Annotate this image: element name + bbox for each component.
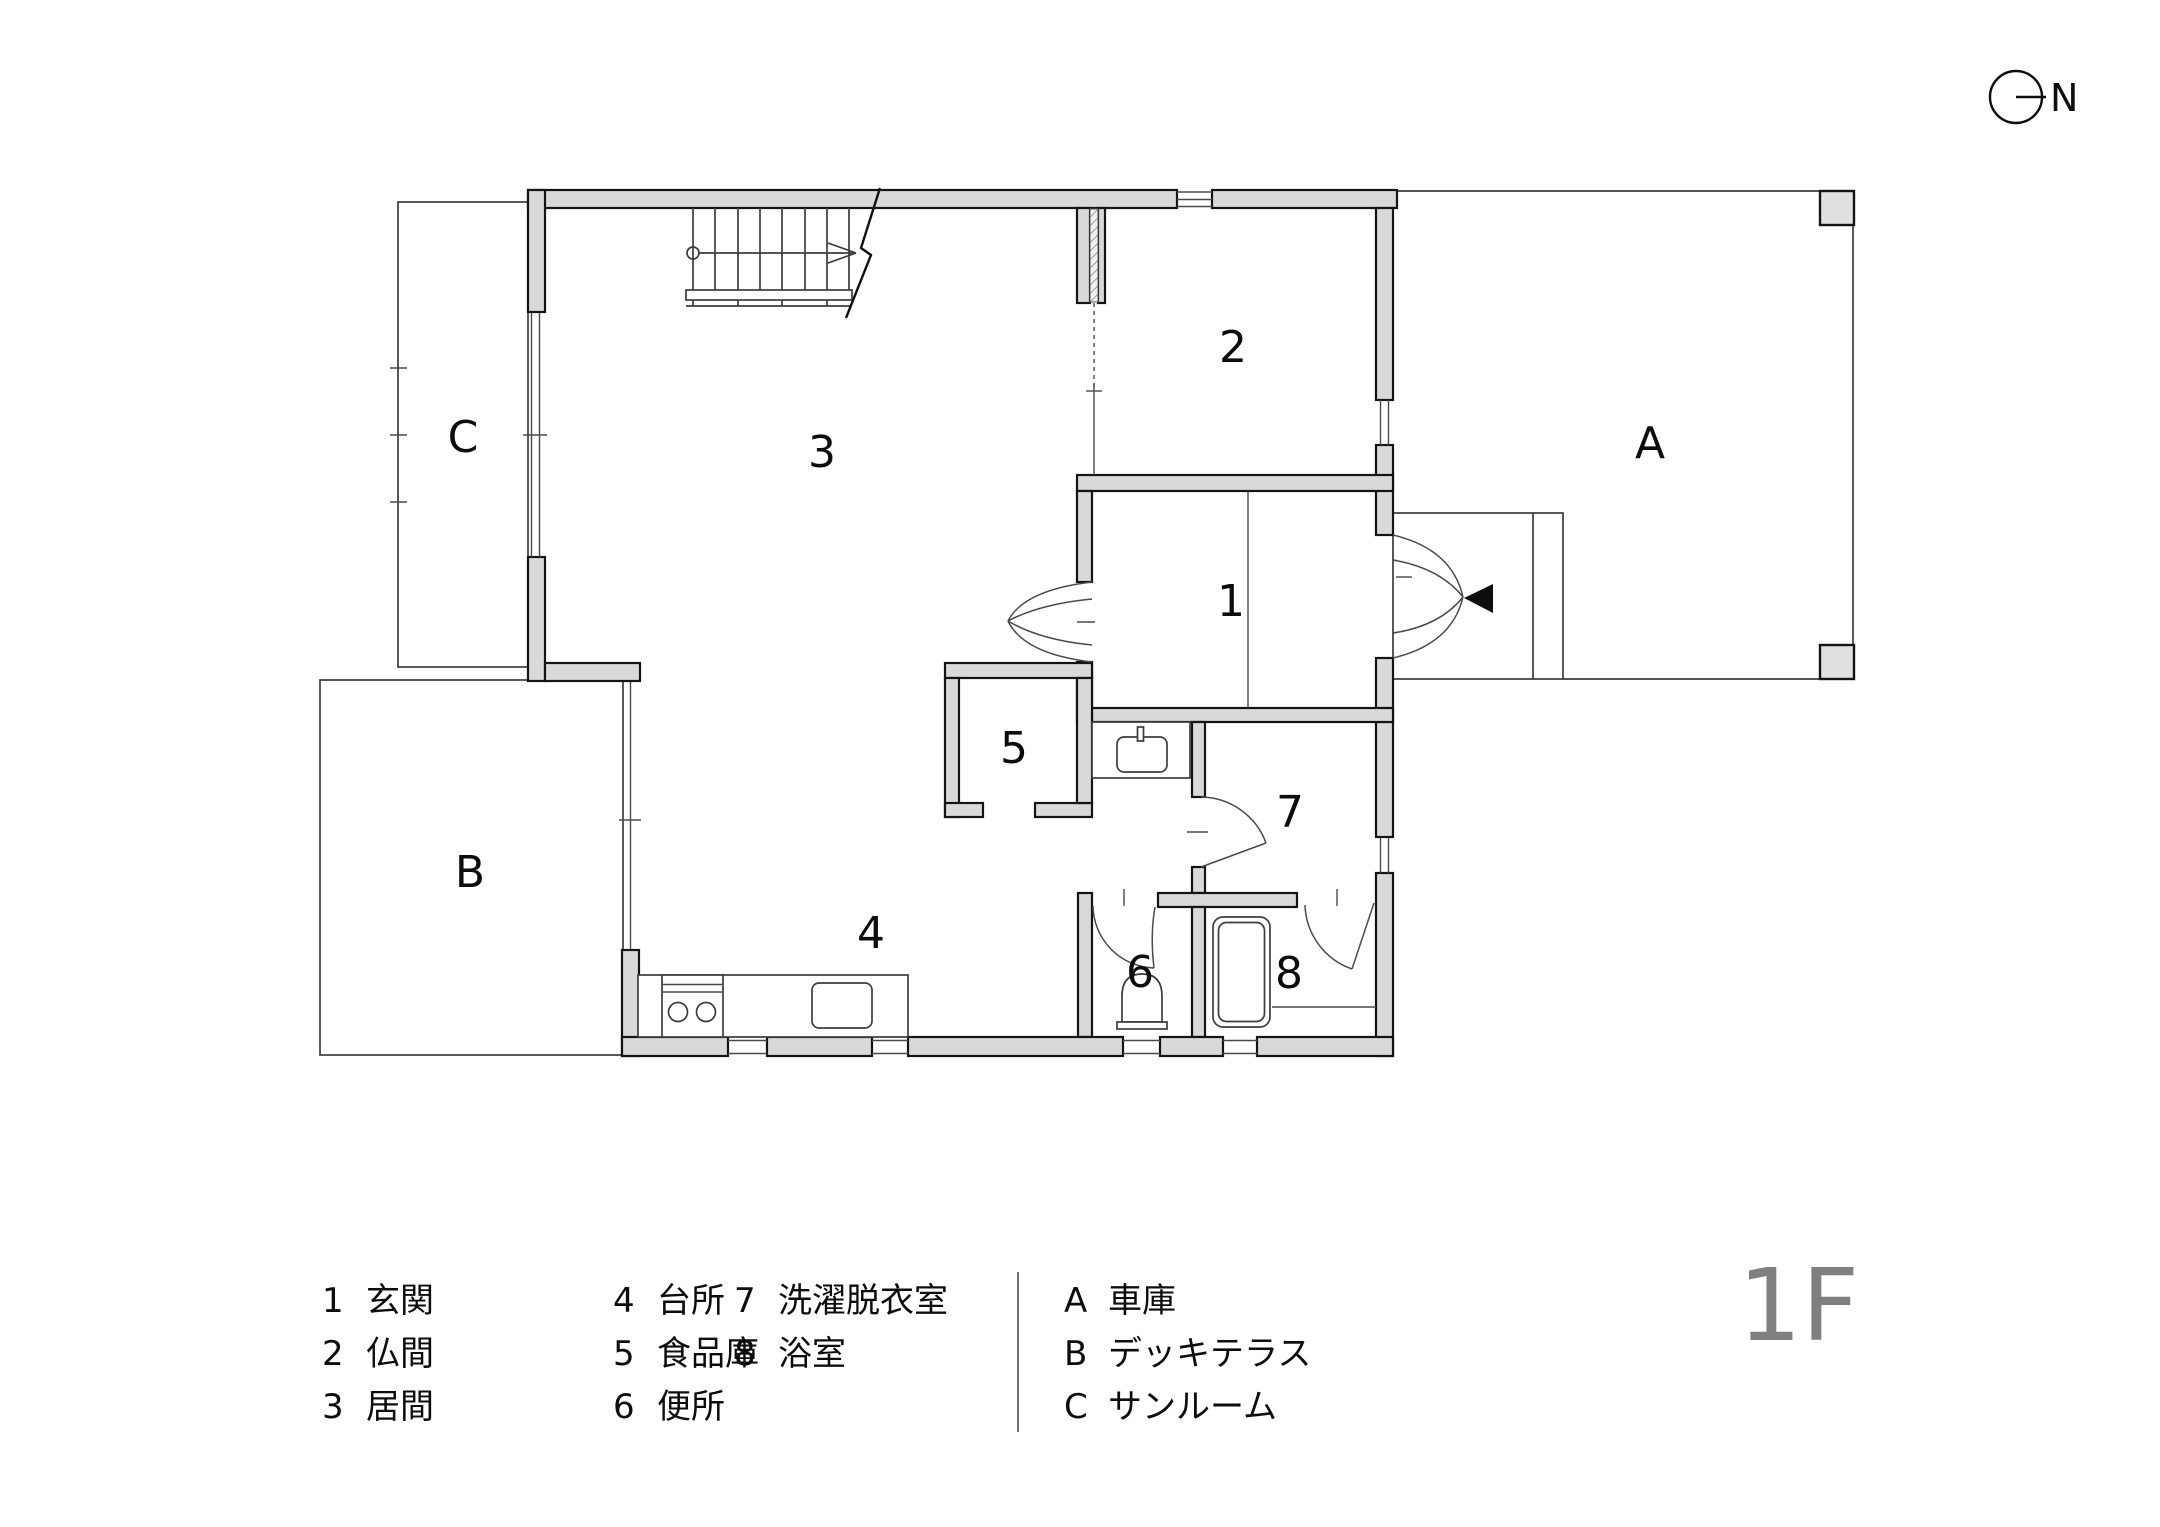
garage-post: [1820, 645, 1854, 679]
legend-name: デッキテラス: [1108, 1334, 1311, 1374]
room-label-kitchen: 4: [857, 908, 885, 959]
wall-segment: [528, 557, 545, 681]
floor-label: 1F: [1738, 1247, 1859, 1364]
wall-segment: [1257, 1037, 1393, 1056]
wall-segment: [908, 1037, 1123, 1056]
wall-segment: [1092, 708, 1393, 722]
room-label-pantry: 5: [1000, 723, 1028, 774]
wall-segment: [528, 190, 545, 312]
wall-segment: [1077, 491, 1092, 582]
room-label-living: 3: [808, 427, 836, 478]
wall-segment: [945, 803, 983, 817]
wall-segment: [1376, 208, 1393, 400]
wall-segment: [1077, 208, 1090, 303]
legend-num: B: [1064, 1334, 1087, 1374]
pocket-door-wall: [1090, 209, 1098, 302]
legend-num: C: [1064, 1387, 1088, 1427]
legend-name: 居間: [366, 1387, 434, 1427]
wall-segment: [1192, 722, 1205, 797]
wall-segment: [545, 663, 640, 681]
wall-segment: [945, 663, 1092, 678]
legend-num: 1: [322, 1281, 344, 1321]
legend-num: 6: [613, 1387, 635, 1427]
bathtub-inner: [1219, 923, 1265, 1022]
room-label-laundry: 7: [1276, 787, 1304, 838]
legend-name: 仏間: [366, 1334, 434, 1374]
legend-num: 3: [322, 1387, 344, 1427]
compass-north-label: N: [2050, 76, 2078, 120]
wall-segment: [528, 190, 1177, 208]
floor-plan-canvas: N: [0, 0, 2160, 1527]
stair-handrail: [686, 290, 852, 300]
floor-plan-page: N: [0, 0, 2160, 1527]
room-label-garage: A: [1635, 418, 1665, 469]
garage-post: [1820, 191, 1854, 225]
vanity-tap: [1138, 727, 1144, 741]
wall-segment: [1376, 873, 1393, 1056]
legend-name: 洗濯脱衣室: [778, 1281, 948, 1321]
stove-burner: [669, 1003, 688, 1022]
wall-segment: [945, 678, 959, 817]
legend-num: 2: [322, 1334, 344, 1374]
legend-num: A: [1064, 1281, 1087, 1321]
wall-segment: [1160, 1037, 1223, 1056]
stove-burner: [697, 1003, 716, 1022]
legend-num: 7: [734, 1281, 756, 1321]
wall-segment: [1078, 893, 1092, 1037]
legend-name: 玄関: [366, 1281, 434, 1321]
legend-name: 台所: [657, 1281, 725, 1321]
legend-name: 便所: [657, 1387, 725, 1427]
toilet-base: [1117, 1022, 1167, 1029]
wall-segment: [1192, 867, 1205, 893]
room-label-bath: 8: [1275, 948, 1303, 999]
room-label-deck: B: [455, 847, 485, 898]
legend-num: 8: [734, 1334, 756, 1374]
vanity-sink: [1117, 737, 1167, 772]
wall-segment: [1376, 722, 1393, 837]
room-label-toilet: 6: [1126, 947, 1154, 998]
legend-num: 4: [613, 1281, 635, 1321]
room-label-altar-room: 2: [1219, 322, 1247, 373]
wall-segment: [1098, 208, 1105, 303]
wall-segment: [1192, 907, 1205, 1037]
legend-name: 車庫: [1108, 1281, 1176, 1321]
room-label-entrance: 1: [1217, 576, 1245, 627]
wall-segment: [767, 1037, 872, 1056]
wall-segment: [1212, 190, 1397, 208]
room-label-sunroom: C: [448, 412, 479, 463]
legend-num: 5: [613, 1334, 635, 1374]
legend-name: サンルーム: [1108, 1387, 1277, 1427]
wall-segment: [1077, 475, 1393, 491]
wall-segment: [1077, 678, 1092, 803]
wall-segment: [1158, 893, 1297, 907]
kitchen-sink: [812, 983, 872, 1028]
legend-name: 浴室: [778, 1334, 846, 1374]
wall-segment: [1035, 803, 1092, 817]
wall-segment: [622, 1037, 728, 1056]
